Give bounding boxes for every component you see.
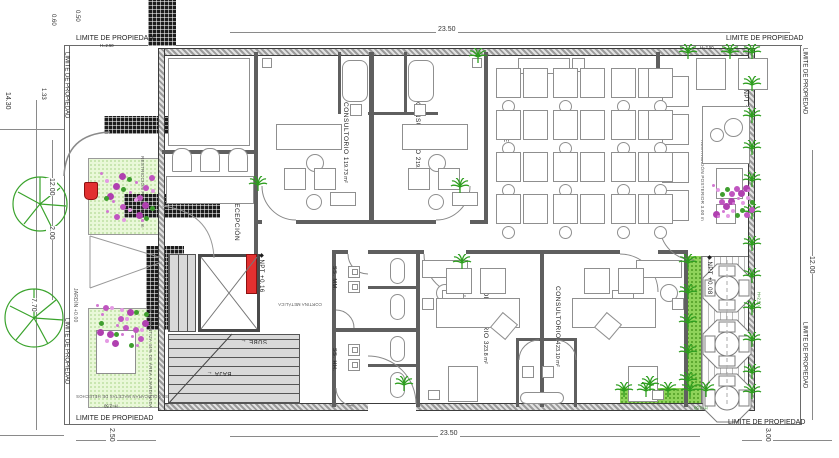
- furniture: [428, 194, 444, 210]
- flower-dot: [107, 331, 114, 338]
- flower-dot: [717, 215, 720, 218]
- flower-dot: [119, 173, 126, 180]
- waiting-chair: [611, 152, 636, 182]
- furniture: [422, 298, 434, 310]
- level-npt-main: ◆NPT +0.16: [258, 252, 265, 293]
- furniture: [168, 58, 250, 146]
- furniture: [352, 284, 358, 290]
- furniture: [352, 347, 358, 353]
- flower-dot: [138, 336, 144, 342]
- waiting-chair: [523, 68, 548, 98]
- flower-dot: [120, 204, 126, 210]
- flower-dot: [125, 317, 129, 321]
- dim-left-060: 0.60: [48, 14, 58, 26]
- boundary-label-left-top: LIMITE DE PROPIEDAD: [63, 52, 69, 118]
- flower-pot-red: [84, 182, 98, 200]
- room-label-c1: CONSULTORIO 119.73 m²: [342, 102, 349, 183]
- flower-dot: [746, 196, 750, 200]
- waiting-chair: [648, 194, 673, 224]
- waiting-chair: [611, 194, 636, 224]
- furniture: [520, 392, 564, 404]
- dim-right-side: 12.00: [806, 256, 817, 274]
- furniture: [402, 124, 468, 150]
- stairs-down-label: BAJA ←: [206, 370, 231, 376]
- furniture: [350, 104, 362, 116]
- furniture: [696, 58, 726, 90]
- furniture: [314, 168, 336, 190]
- flower-dot: [135, 181, 138, 184]
- flower-dot: [134, 198, 138, 202]
- flower-dot: [731, 209, 735, 213]
- flower-dot: [122, 218, 126, 222]
- furniture: [710, 128, 724, 142]
- flower-dot: [129, 191, 132, 194]
- waiting-chair: [553, 152, 578, 182]
- waiting-chair: [580, 68, 605, 98]
- flower-dot: [97, 329, 104, 336]
- level-marker-icon: ◆: [258, 252, 264, 260]
- dim-bottom-right: 3.00: [762, 428, 773, 442]
- dim-left-bottom: 7.70: [28, 298, 39, 312]
- furniture: [408, 168, 430, 190]
- waiting-chair: [553, 194, 578, 224]
- flower-dot: [129, 343, 134, 348]
- flower-dot: [100, 172, 103, 175]
- room-label-recepcion: RECEPCIÓN: [233, 198, 240, 241]
- flower-dot: [720, 192, 725, 197]
- flower-dot: [121, 333, 124, 336]
- flower-dot: [101, 313, 104, 316]
- furniture: [342, 60, 368, 102]
- waiting-chair: [496, 152, 521, 182]
- note-ferns: SE COLOCARÁN MACETAS DE HELECHOS: [76, 394, 168, 399]
- height-note-bottom-right: H=2.50: [694, 405, 708, 409]
- flower-dot: [749, 207, 755, 213]
- furniture: [276, 124, 342, 150]
- flower-dot: [136, 344, 139, 347]
- waiting-chair: [611, 68, 636, 98]
- waiting-chair: [580, 152, 605, 182]
- flower-dot: [99, 321, 104, 326]
- flower-dot: [716, 188, 720, 192]
- flower-dot: [150, 206, 155, 211]
- flower-dot: [144, 216, 149, 221]
- flower-dot: [142, 202, 149, 209]
- furniture: [390, 258, 405, 284]
- note-cortina: CORTINA METÁLICA: [278, 302, 322, 307]
- flower-dot: [127, 177, 132, 182]
- waiting-chair: [523, 110, 548, 140]
- waiting-chair: [523, 152, 548, 182]
- flower-dot: [112, 340, 119, 347]
- dim-bottom-left: 2.50: [106, 428, 117, 442]
- waiting-chair: [648, 110, 673, 140]
- flower-dot: [118, 316, 124, 322]
- flower-dot: [149, 175, 155, 181]
- boundary-label-top-right: LIMITE DE PROPIEDAD: [726, 35, 803, 42]
- level-npt-terrace: ◆NPT +0.08: [706, 254, 713, 295]
- flower-dot: [114, 214, 120, 220]
- side-table: [654, 226, 667, 239]
- furniture: [428, 390, 440, 400]
- waiting-chair: [523, 194, 548, 224]
- flower-dot: [738, 190, 745, 197]
- flower-dot: [121, 187, 126, 192]
- flower-dot: [737, 197, 740, 200]
- furniture: [352, 362, 358, 368]
- flower-dot: [141, 219, 144, 222]
- waiting-chair: [496, 68, 521, 98]
- room-label-c4: CONSULTORIO 423.10 m²: [554, 286, 561, 367]
- flower-dot: [726, 214, 730, 218]
- stair-arrow-icon: ←: [206, 370, 213, 376]
- flower-dot: [140, 328, 144, 332]
- flower-dot: [106, 210, 109, 213]
- dim-left-tall: 14.30: [2, 92, 13, 110]
- flower-dot: [732, 202, 735, 205]
- waiting-chair: [648, 152, 673, 182]
- flower-dot: [144, 312, 149, 317]
- furniture: [330, 192, 356, 206]
- waiting-chair: [648, 68, 673, 98]
- furniture: [618, 268, 644, 294]
- flower-dot: [142, 320, 149, 327]
- furniture: [446, 268, 472, 294]
- flower-dot: [105, 179, 109, 183]
- furniture: [172, 148, 192, 172]
- flower-dot: [114, 332, 119, 337]
- furniture: [724, 118, 743, 137]
- level-marker-icon: ◆: [706, 254, 712, 262]
- side-table: [617, 226, 630, 239]
- flower-dot: [103, 305, 109, 311]
- floor-plan: LIMITE DE PROPIEDAD H=2.50 LIMITE DE PRO…: [0, 0, 839, 458]
- furniture: [542, 366, 554, 378]
- furniture: [452, 192, 478, 206]
- boundary-label-top-left: LIMITE DE PROPIEDAD: [76, 35, 153, 42]
- boundary-label-right-top: LIMITE DE PROPIEDAD: [801, 48, 807, 114]
- stair-arrow-icon: ←: [240, 338, 247, 344]
- dim-left-050: 0.50: [72, 10, 82, 22]
- furniture: [262, 58, 272, 68]
- boundary-label-bottom-left: LIMITE DE PROPIEDAD: [76, 415, 153, 422]
- dim-bottom: 23.50: [438, 430, 460, 437]
- furniture: [408, 60, 434, 102]
- furniture: [200, 148, 220, 172]
- dim-left-133: 1.33: [38, 88, 48, 100]
- dim-top: 23.50: [436, 26, 458, 33]
- waiting-chair: [496, 110, 521, 140]
- flower-dot: [744, 212, 750, 218]
- furniture: [522, 366, 534, 378]
- flower-dot: [741, 201, 745, 205]
- stairs-up-label: SUBE ←: [240, 338, 267, 344]
- flower-dot: [133, 327, 139, 333]
- furniture: [228, 148, 248, 172]
- flower-dot: [128, 208, 132, 212]
- height-note-top-right: H=2.50: [700, 46, 714, 50]
- furniture: [166, 176, 254, 204]
- flower-dot: [131, 335, 134, 338]
- waiting-chair: [580, 194, 605, 224]
- furniture: [352, 269, 358, 275]
- furniture: [448, 366, 478, 402]
- flower-dot: [134, 310, 139, 315]
- flower-dot: [104, 196, 109, 201]
- waiting-chair: [611, 110, 636, 140]
- flower-dot: [722, 210, 725, 213]
- waiting-chair: [496, 194, 521, 224]
- flower-dot: [729, 191, 735, 197]
- furniture: [480, 268, 506, 294]
- side-table: [502, 226, 515, 239]
- flower-dot: [712, 184, 715, 187]
- height-note-bottom-left: H=2.50: [104, 403, 118, 407]
- flower-dot: [110, 306, 114, 310]
- waiting-chair: [553, 68, 578, 98]
- flower-dot: [113, 183, 120, 190]
- furniture: [414, 104, 426, 116]
- side-table: [559, 226, 572, 239]
- flower-dot: [120, 308, 124, 312]
- furniture: [390, 294, 405, 320]
- flower-dot: [723, 203, 730, 210]
- dim-left-side: 12.00: [46, 178, 57, 196]
- boundary-label-bottom-right: LIMITE DE PROPIEDAD: [728, 419, 805, 426]
- waiting-chair: [580, 110, 605, 140]
- level-jardin: JARDÍN +0.00: [72, 288, 78, 323]
- flower-dot: [112, 200, 115, 203]
- flower-dot: [143, 185, 149, 191]
- flower-dot: [105, 339, 109, 343]
- furniture: [284, 168, 306, 190]
- furniture: [306, 194, 322, 210]
- flower-dot: [123, 325, 129, 331]
- flower-dot: [116, 324, 119, 327]
- furniture: [584, 268, 610, 294]
- dim-left-mid: 2.00: [46, 226, 57, 240]
- flower-dot: [735, 213, 740, 218]
- flower-dot: [151, 189, 155, 193]
- flower-dot: [136, 212, 143, 219]
- height-note-top-left: H=2.50: [100, 44, 114, 48]
- room-label-sshh: SS. HH.: [331, 348, 337, 371]
- boundary-label-right-bottom: LIMITE DE PROPIEDAD: [801, 322, 807, 388]
- flower-dot: [96, 304, 99, 307]
- furniture: [390, 336, 405, 362]
- waiting-chair: [553, 110, 578, 140]
- flower-dot: [747, 189, 750, 192]
- flower-dot: [750, 200, 755, 205]
- boundary-label-left-bottom: LIMITE DE PROPIEDAD: [63, 318, 69, 384]
- flower-dot: [127, 309, 134, 316]
- room-label-ssmm: SS. MM.: [331, 266, 337, 291]
